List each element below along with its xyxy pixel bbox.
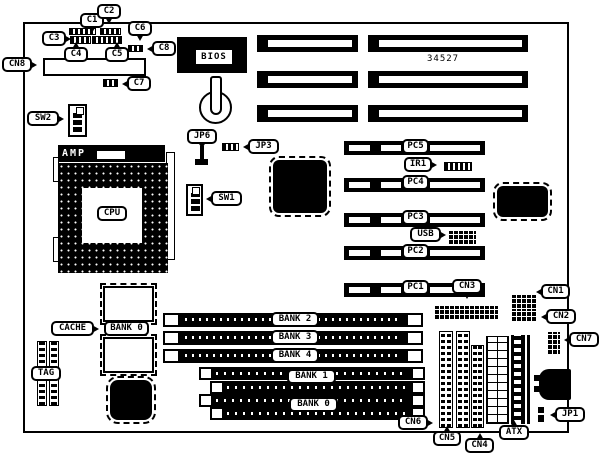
bios-chip: BIOS xyxy=(177,37,247,73)
mem-label-bank1: BANK 1 xyxy=(287,369,336,384)
mem-label-bank0: BANK 0 xyxy=(289,397,338,412)
callout-cn7: CN7 xyxy=(569,332,599,347)
dip-switch-sw2 xyxy=(68,104,87,137)
cache-chip-2 xyxy=(103,337,154,373)
callout-c4: C4 xyxy=(64,47,88,62)
pci-label-pc1: PC1 xyxy=(402,280,429,295)
callout-c8: C8 xyxy=(152,41,176,56)
atx-power-connector xyxy=(486,336,509,424)
callout-cn8: CN8 xyxy=(2,57,32,72)
callout-cn3: CN3 xyxy=(452,279,482,294)
jp1-jumper-top xyxy=(538,407,544,413)
callout-sw2: SW2 xyxy=(27,111,59,126)
callout-jp3: JP3 xyxy=(248,139,279,154)
simm-label-bank2: BANK 2 xyxy=(271,312,319,327)
callout-cache: CACHE xyxy=(51,321,94,336)
din-tab-2 xyxy=(534,386,540,392)
callout-cn1: CN1 xyxy=(541,284,570,299)
callout-atx: ATX xyxy=(499,425,529,440)
jp3-jumper xyxy=(222,143,239,151)
isa-slot-2-right xyxy=(368,71,528,88)
callout-c5: C5 xyxy=(105,47,129,62)
pci-label-pc5: PC5 xyxy=(402,139,429,154)
chipset-qfp-chip xyxy=(273,160,327,213)
keyboard-din-connector xyxy=(539,369,571,400)
callout-cpu: CPU xyxy=(97,206,127,221)
dip-switch-sw1 xyxy=(186,184,203,216)
pci-label-pc3: PC3 xyxy=(402,210,429,225)
io-qfp-chip xyxy=(497,186,548,217)
cn2-header xyxy=(512,309,536,321)
callout-cn4: CN4 xyxy=(465,438,494,453)
cache-chip-1 xyxy=(103,286,154,322)
din-tab-1 xyxy=(534,375,540,381)
callout-c7: C7 xyxy=(127,76,151,91)
isa-slot-2-left xyxy=(257,71,358,88)
amp-label: AMP xyxy=(62,148,86,159)
cn3-header xyxy=(435,306,498,319)
battery-stick xyxy=(210,76,222,115)
amp-regulator-bar: AMP xyxy=(58,145,165,162)
cn5-connector xyxy=(456,331,470,428)
capacitor-strip-c8 xyxy=(128,45,143,52)
sw2-pin xyxy=(76,107,84,115)
callout-jp1: JP1 xyxy=(555,407,585,422)
cn6-connector xyxy=(439,331,453,428)
cn1-header xyxy=(512,295,536,308)
isa-slot-1-right xyxy=(368,35,528,52)
callout-c2: C2 xyxy=(97,4,121,19)
sw1-pin xyxy=(192,187,200,195)
callout-jp6: JP6 xyxy=(187,129,217,144)
at-power-connector xyxy=(511,335,530,424)
cn8-connector xyxy=(43,58,146,76)
callout-tag: TAG xyxy=(31,366,61,381)
motherboard-diagram: 34527 BIOS AMP xyxy=(0,0,603,457)
sw2-switch-blocks xyxy=(73,113,82,132)
bios-chip-label: BIOS xyxy=(196,50,232,64)
pci-label-pc4: PC4 xyxy=(402,175,429,190)
isa-slot-1-left xyxy=(257,35,358,52)
sw1-switch-blocks xyxy=(191,193,200,211)
cn7-header xyxy=(548,332,560,354)
plcc-chip xyxy=(110,380,152,420)
isa-slot-3-left xyxy=(257,105,358,122)
callout-cn6: CN6 xyxy=(398,415,428,430)
ir1-header xyxy=(444,162,472,171)
callout-c3: C3 xyxy=(42,31,66,46)
usb-header xyxy=(449,231,476,244)
simm-label-bank4: BANK 4 xyxy=(271,348,319,363)
amp-resistor xyxy=(96,150,126,160)
isa-slot-3-right xyxy=(368,105,528,122)
board-part-number: 34527 xyxy=(427,54,459,64)
simm-label-bank3: BANK 3 xyxy=(271,330,319,345)
capacitor-strip-c2 xyxy=(100,28,121,35)
callout-ir1: IR1 xyxy=(404,157,432,172)
pci-label-pc2: PC2 xyxy=(402,244,429,259)
cn4-connector xyxy=(471,345,484,428)
callout-c6: C6 xyxy=(128,21,152,36)
jp1-jumper-bottom xyxy=(538,415,544,422)
cache-bank0-label: BANK 0 xyxy=(104,321,149,336)
jp6-jumper-base xyxy=(195,159,208,165)
callout-sw1: SW1 xyxy=(211,191,242,206)
callout-cn2: CN2 xyxy=(546,309,576,324)
callout-usb: USB xyxy=(410,227,441,242)
capacitor-strip-c7 xyxy=(103,79,118,87)
callout-cn5: CN5 xyxy=(433,431,461,446)
